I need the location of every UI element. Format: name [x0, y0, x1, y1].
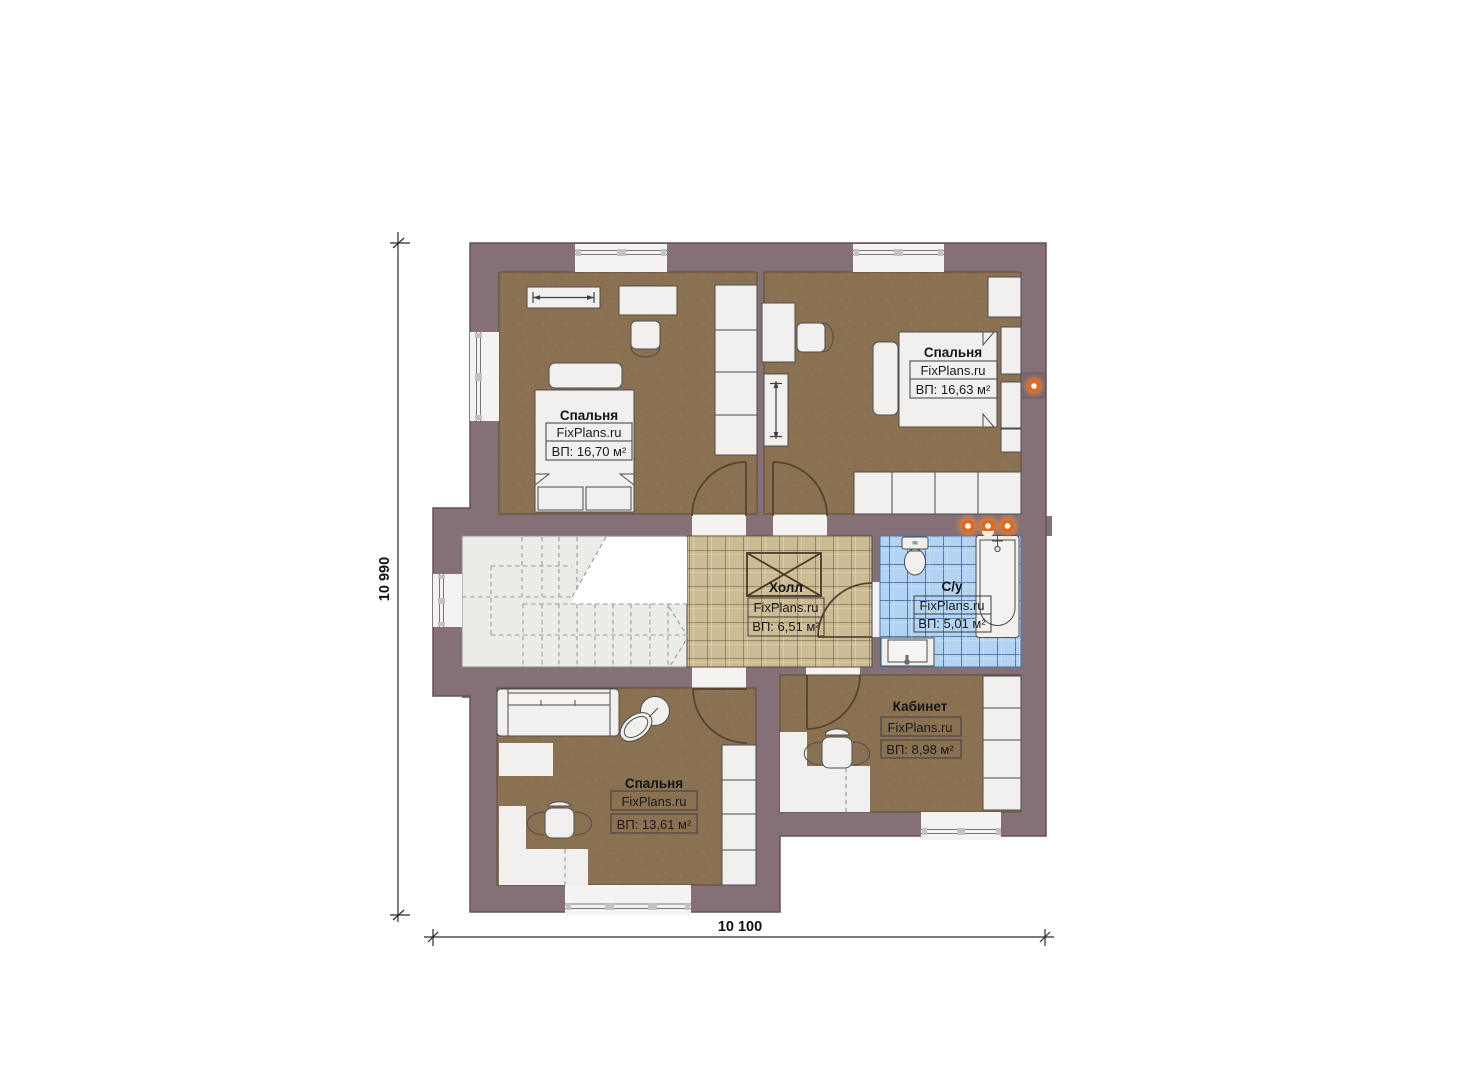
svg-text:ВП: 8,98 м²: ВП: 8,98 м²: [886, 742, 954, 757]
svg-text:Кабинет: Кабинет: [893, 699, 948, 714]
svg-text:10 100: 10 100: [718, 919, 762, 935]
svg-text:Холл: Холл: [769, 580, 803, 595]
svg-text:FixPlans.ru: FixPlans.ru: [887, 720, 952, 735]
svg-text:FixPlans.ru: FixPlans.ru: [753, 600, 818, 615]
svg-text:FixPlans.ru: FixPlans.ru: [919, 598, 984, 613]
svg-text:ВП: 6,51 м²: ВП: 6,51 м²: [752, 619, 820, 634]
svg-text:FixPlans.ru: FixPlans.ru: [621, 794, 686, 809]
svg-text:С/у: С/у: [941, 579, 963, 594]
svg-text:Спальня: Спальня: [560, 408, 618, 423]
svg-text:FixPlans.ru: FixPlans.ru: [920, 363, 985, 378]
svg-text:Спальня: Спальня: [924, 345, 982, 360]
svg-text:10 990: 10 990: [377, 557, 393, 601]
svg-text:ВП: 5,01 м²: ВП: 5,01 м²: [918, 616, 986, 631]
svg-text:ВП: 13,61 м²: ВП: 13,61 м²: [617, 817, 692, 832]
svg-text:FixPlans.ru: FixPlans.ru: [556, 425, 621, 440]
svg-text:ВП: 16,70 м²: ВП: 16,70 м²: [552, 444, 627, 459]
svg-text:ВП: 16,63 м²: ВП: 16,63 м²: [916, 382, 991, 397]
svg-text:Спальня: Спальня: [625, 776, 683, 791]
